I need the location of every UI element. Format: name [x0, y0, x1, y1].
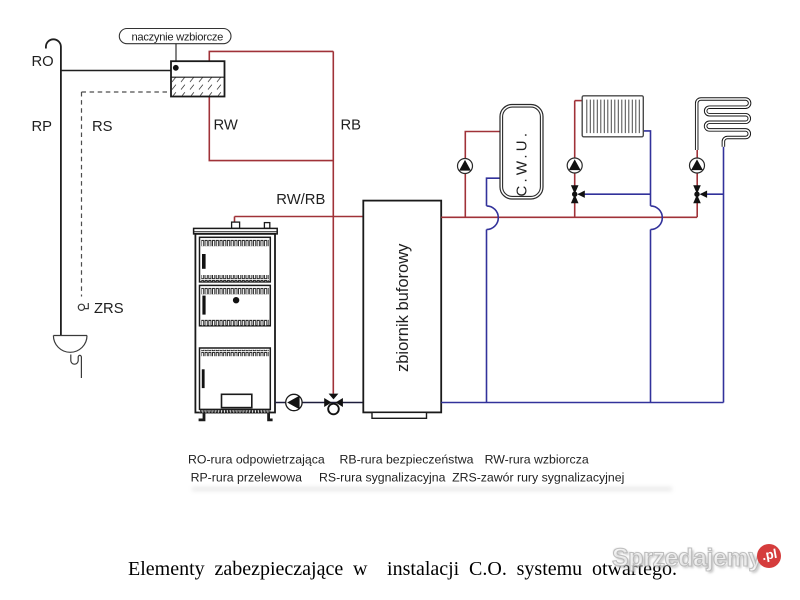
svg-text:RO-rura odpowietrzająca: RO-rura odpowietrzająca	[188, 453, 325, 467]
svg-text:RP-rura przelewowa: RP-rura przelewowa	[191, 471, 303, 485]
svg-text:naczynie wzbiorcze: naczynie wzbiorcze	[132, 31, 224, 43]
svg-text:ZRS: ZRS	[94, 301, 124, 317]
svg-text:RB-rura bezpieczeństwa: RB-rura bezpieczeństwa	[340, 453, 474, 467]
svg-text:RS-rura sygnalizacyjna: RS-rura sygnalizacyjna	[319, 471, 446, 485]
svg-text:RO: RO	[32, 54, 54, 70]
svg-text:RW/RB: RW/RB	[276, 192, 325, 208]
svg-text:RS: RS	[92, 119, 113, 135]
svg-text:ZRS-zawór rury sygnalizacyjnej: ZRS-zawór rury sygnalizacyjnej	[452, 471, 624, 485]
svg-text:RP: RP	[32, 119, 53, 135]
svg-text:RB: RB	[341, 117, 362, 133]
svg-text:RW-rura wzbiorcza: RW-rura wzbiorcza	[485, 453, 589, 467]
svg-text:C.W.U.: C.W.U.	[514, 130, 531, 197]
svg-text:zbiornik buforowy: zbiornik buforowy	[394, 243, 412, 372]
svg-text:RW: RW	[214, 117, 238, 133]
